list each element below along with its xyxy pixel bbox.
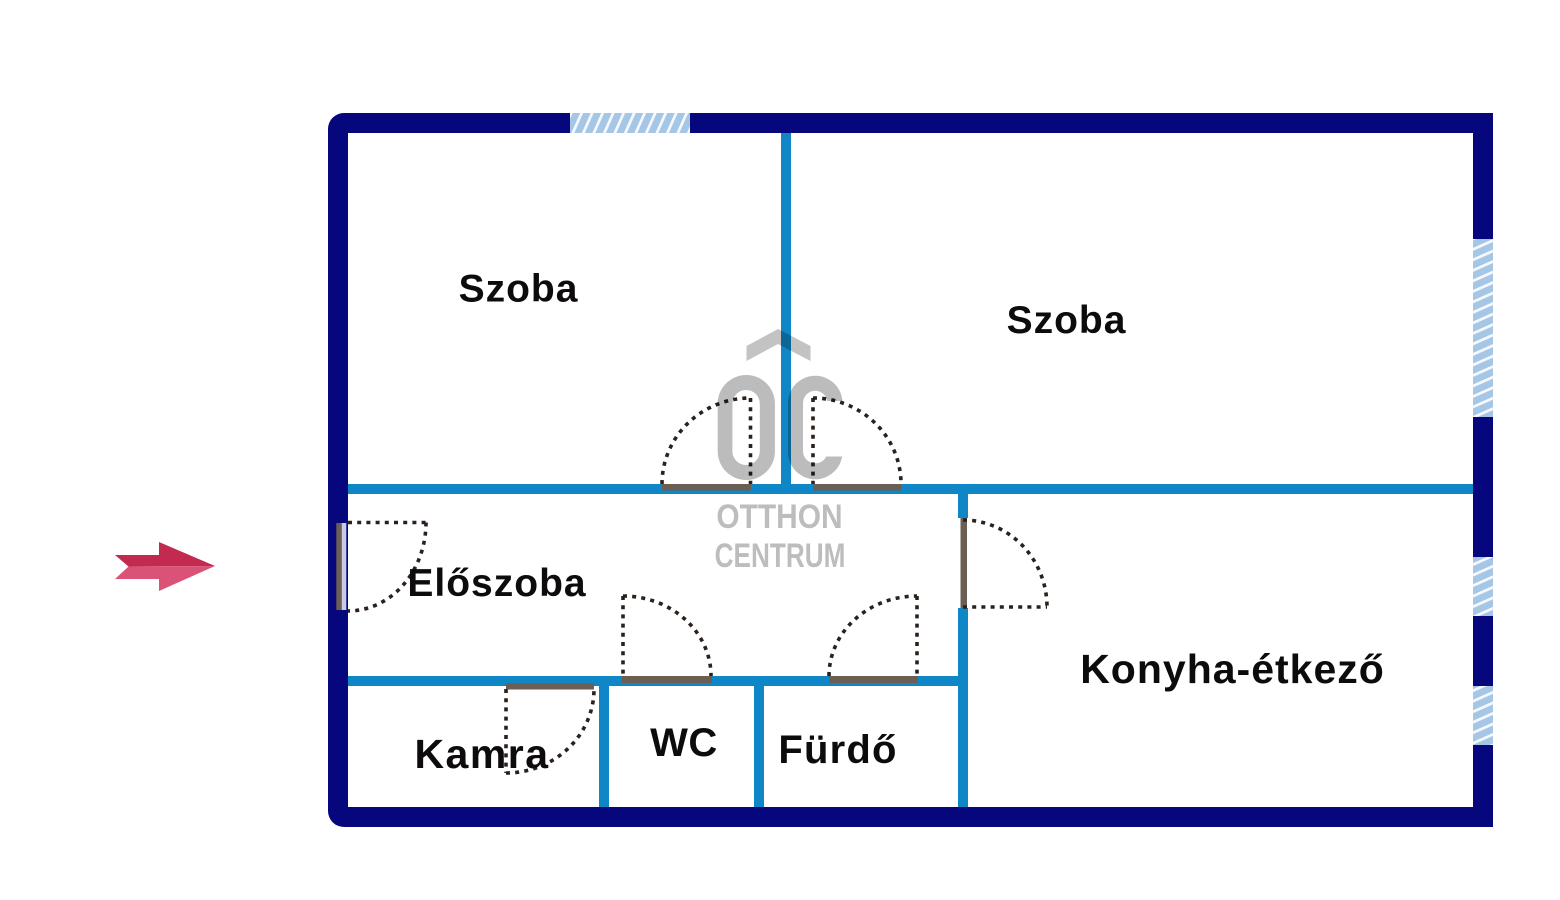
- svg-text:OTTHON: OTTHON: [716, 497, 842, 535]
- svg-text:Szoba: Szoba: [1007, 299, 1127, 342]
- svg-text:Konyha-étkező: Konyha-étkező: [1080, 646, 1385, 692]
- svg-text:Előszoba: Előszoba: [407, 562, 586, 605]
- svg-text:Kamra: Kamra: [414, 731, 549, 777]
- svg-text:Szoba: Szoba: [459, 268, 579, 311]
- svg-text:CENTRUM: CENTRUM: [715, 538, 846, 575]
- svg-text:Fürdő: Fürdő: [778, 728, 897, 772]
- svg-text:WC: WC: [650, 721, 718, 765]
